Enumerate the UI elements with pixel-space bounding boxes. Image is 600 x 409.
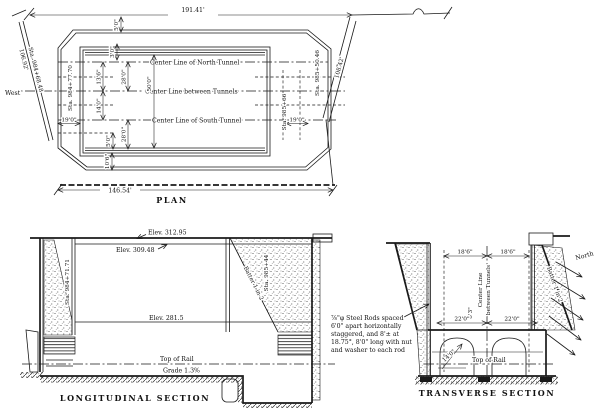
station-right-edge: Sta. 985+50.46 — [315, 50, 321, 96]
footing-pad — [540, 377, 552, 382]
rod-line — [547, 334, 575, 355]
ground-hatch — [40, 377, 243, 383]
drawing-sheet: 191.41' — [0, 0, 600, 409]
center-line-north-label: Center Line of North Tunnel — [150, 59, 239, 66]
dim-10-6: 10'6" — [105, 154, 111, 170]
north-label: North — [575, 250, 595, 262]
dim-14-0: 14'0" — [97, 98, 103, 114]
plan-title: PLAN — [156, 195, 188, 205]
dim-19-0-right: 19'0" — [289, 118, 305, 124]
west-label: West — [5, 90, 21, 97]
center-line-label-1: Center Line — [478, 272, 484, 307]
dim-arch-left: 22'0" — [454, 317, 470, 323]
top-of-rail-label: Top of Rail — [160, 356, 194, 363]
break-line — [352, 9, 450, 15]
top-of-rail-label: Top of Rail — [472, 357, 506, 364]
longitudinal-section: Elev. 312.95 Elev. 309.48 Sta. 984+71.71… — [20, 230, 335, 409]
plan-right-slope-lines — [323, 17, 356, 185]
dim-19-0-left: 19'0" — [61, 118, 77, 124]
concrete-fill — [417, 330, 430, 376]
coping-block — [529, 233, 553, 245]
tunnel-portal-drawing: 191.41' — [0, 0, 600, 409]
station-right-label: Sta. 985+44 — [264, 254, 270, 291]
longitudinal-title: LONGITUDINAL SECTION — [60, 393, 210, 403]
witness-tick — [54, 184, 62, 195]
station-left-label: Sta. 984+71.71 — [65, 259, 71, 305]
ground-hatch — [243, 403, 312, 408]
right-slope-wall: Batter 1 in 2 — [529, 233, 575, 330]
center-line-south-label: Center Line of South Tunnel — [152, 117, 241, 124]
plan-center-lines — [8, 62, 345, 140]
dim-5-0-bottom: 5'0" — [106, 135, 112, 147]
diagonal-line — [19, 22, 49, 141]
leader-line — [158, 245, 167, 250]
rod-note-line5: and washer to each rod — [331, 347, 405, 354]
dim-5-0-top: 5'0" — [114, 19, 120, 31]
footing-pad — [478, 377, 490, 382]
right-diagonal-length: 108.42' — [334, 56, 346, 79]
floor-profile — [40, 376, 312, 408]
left-retaining-wall: Sta. 984+71.71 — [20, 238, 75, 378]
plan-top-width-dim: 191.41' — [181, 7, 205, 14]
footing-pad — [420, 377, 432, 382]
dim-3-0: 3'0" — [110, 46, 116, 58]
dim-28-0-lower: 28'0" — [122, 127, 128, 143]
plan-top-dimension: 191.41' — [12, 7, 452, 20]
dim-arch-right: 22'0" — [504, 317, 520, 323]
masonry-courses — [44, 337, 75, 354]
elev-mid-label: Elev. 309.48 — [116, 247, 155, 254]
dim-left-half: 18'6" — [457, 250, 473, 256]
station-inner-right: Sta. 985+66 — [282, 93, 288, 130]
ground-hatch — [20, 372, 43, 378]
dim-50-0: 50'0" — [147, 76, 153, 92]
transverse-section: Batter 1 in 2 North 18'6" 18'6" Center L… — [386, 233, 594, 398]
rod-note-line4: 18.75°, 8'0" long with nut — [331, 339, 412, 346]
plan-bottom-width-dim: 146.54' — [108, 188, 132, 195]
rod-note-line3: staggered, and 8'± at — [331, 331, 400, 338]
witness-tick — [329, 185, 337, 196]
elev-top-label: Elev. 312.95 — [148, 230, 187, 237]
rod-note-line1: ⅞"φ Steel Rods spaced — [331, 315, 404, 322]
ground-hatch — [238, 382, 243, 403]
witness-tick — [12, 10, 26, 16]
wingwall-end — [26, 330, 38, 372]
dim-28-0-upper: 28'0" — [122, 69, 128, 85]
dim-right-half: 18'6" — [500, 250, 516, 256]
slope-line — [329, 21, 356, 122]
station-inner-left: Sta. 984+77.70 — [68, 65, 74, 111]
left-slope-wall — [386, 243, 431, 376]
dim-13-6: 13'6" — [97, 69, 103, 85]
transverse-title: TRANSVERSE SECTION — [419, 388, 556, 398]
plan-bottom-dimension: 146.54' — [54, 184, 337, 196]
edge-fill — [312, 240, 320, 400]
elev-floor-label: Elev. 281.5 — [149, 315, 184, 322]
masonry-courses — [278, 335, 312, 355]
rod-note-line2: 6'0" apart horizontally — [331, 323, 402, 330]
center-line-label-2: between Tunnels — [486, 265, 492, 315]
grade-label: Grade 1.3% — [163, 368, 200, 375]
plan-view: 191.41' — [5, 7, 452, 205]
center-line-between-label: Center Line between Tunnels — [145, 88, 238, 95]
